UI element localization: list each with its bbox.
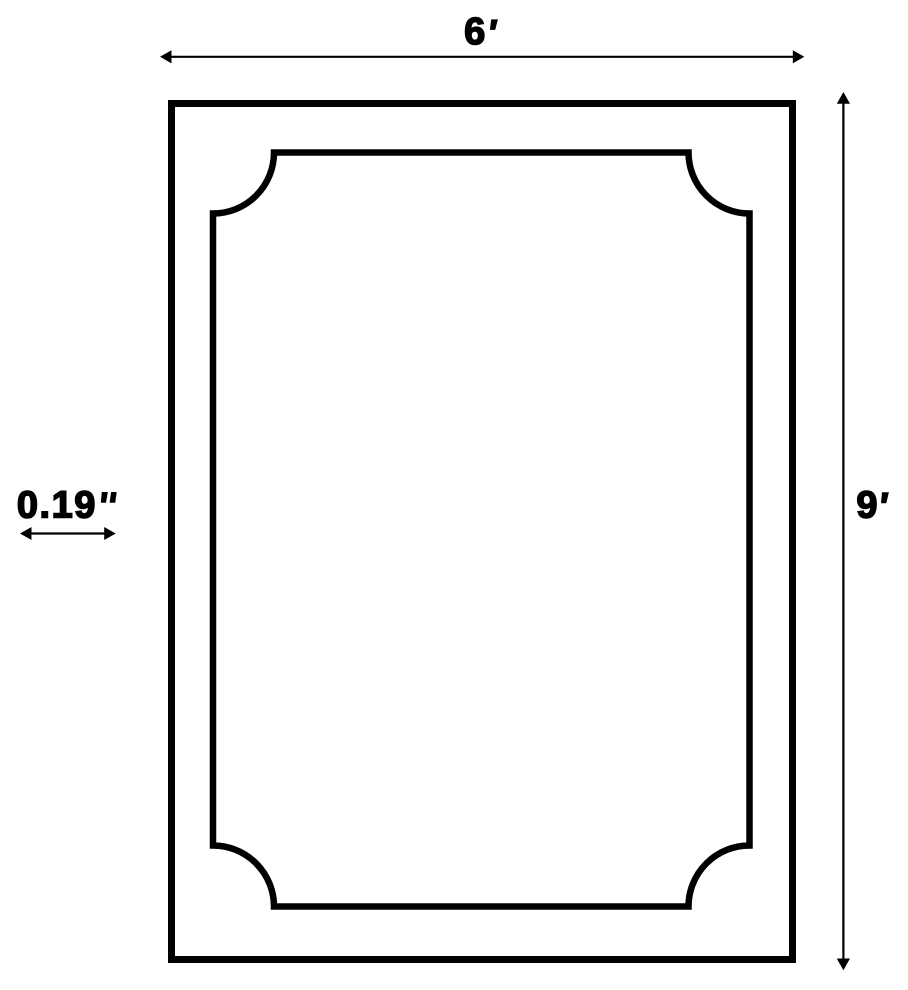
svg-text:0.19: 0.19 xyxy=(17,485,97,527)
svg-text:6: 6 xyxy=(464,11,485,53)
svg-text:9: 9 xyxy=(856,485,877,527)
